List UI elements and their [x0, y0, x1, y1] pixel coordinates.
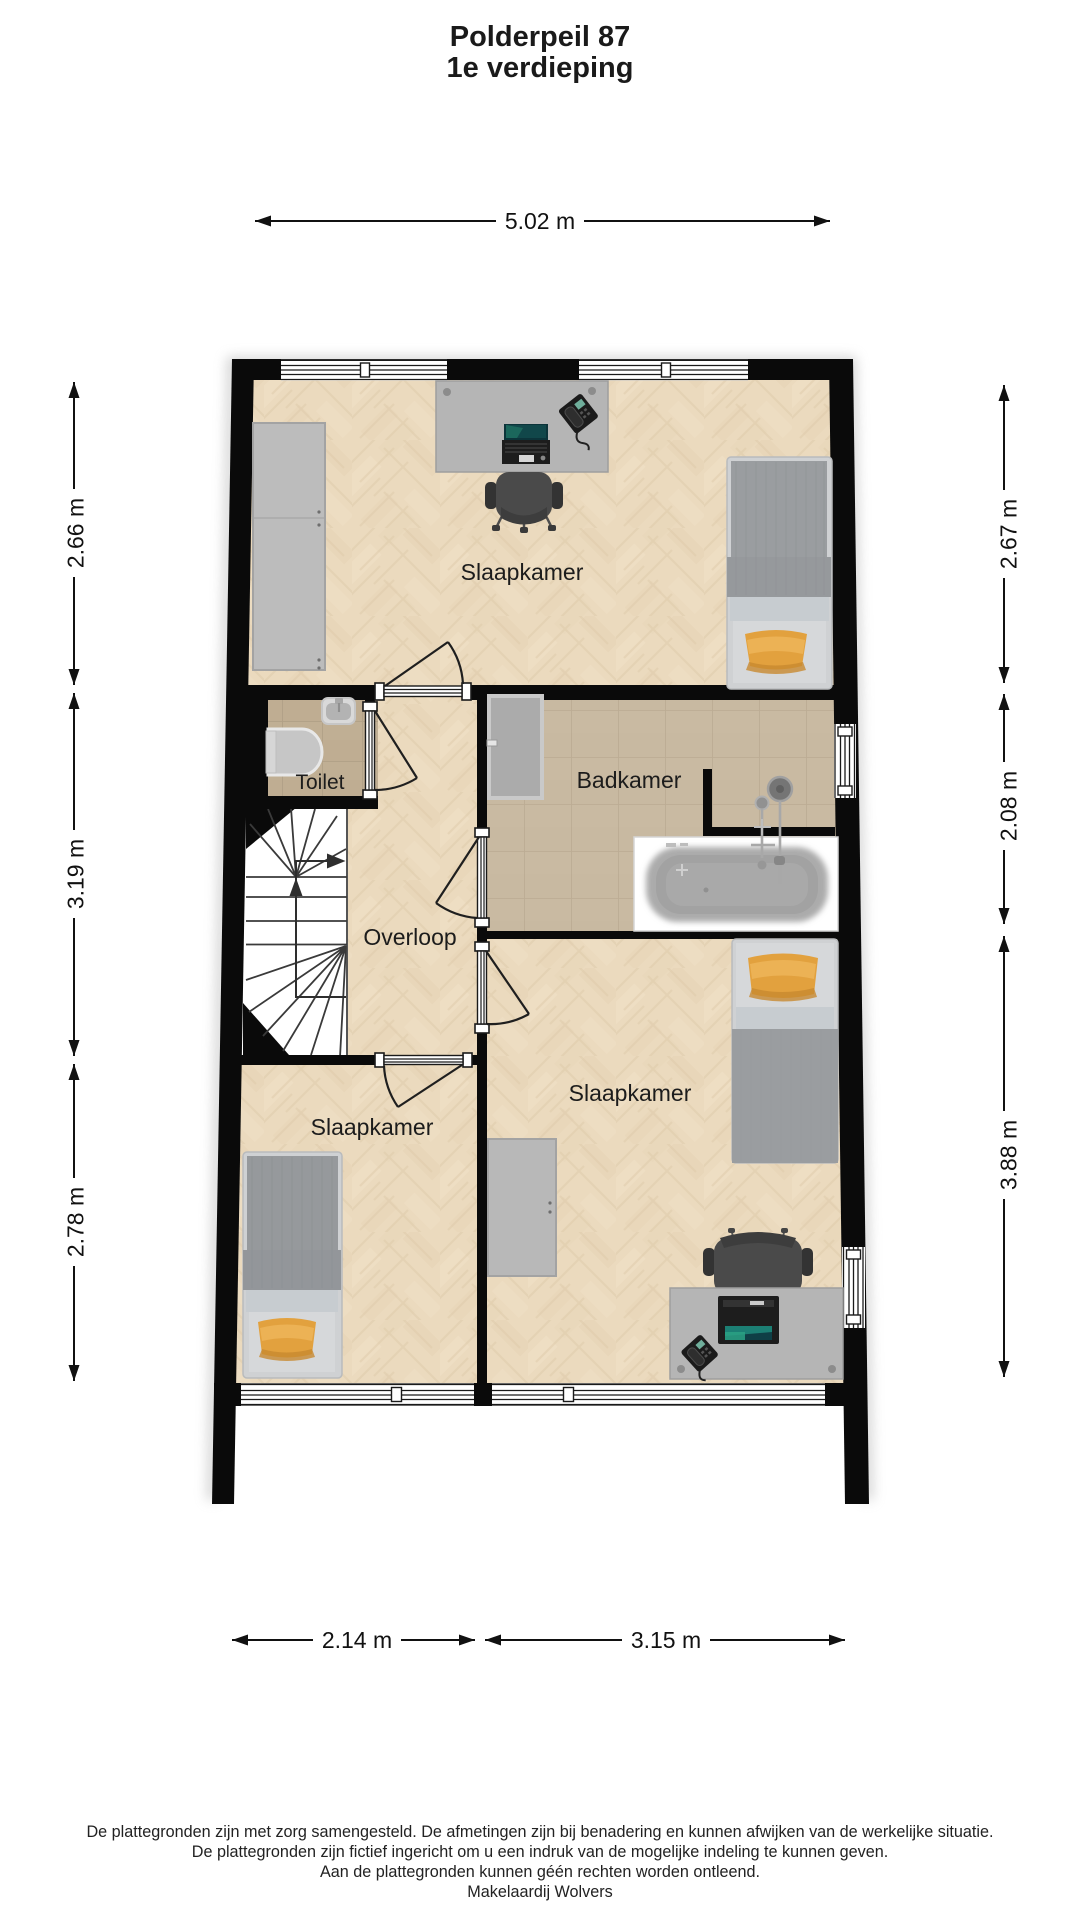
svg-text:2.08 m: 2.08 m: [996, 771, 1022, 841]
svg-text:Aan de plattegronden kunnen gé: Aan de plattegronden kunnen géén rechten…: [320, 1863, 760, 1881]
svg-text:2.66 m: 2.66 m: [63, 498, 89, 568]
svg-text:De plattegronden zijn fictief: De plattegronden zijn fictief ingericht …: [192, 1843, 889, 1861]
svg-text:5.02 m: 5.02 m: [505, 208, 575, 234]
svg-text:2.78 m: 2.78 m: [63, 1187, 89, 1257]
svg-text:Makelaardij Wolvers: Makelaardij Wolvers: [467, 1883, 612, 1901]
svg-text:Overloop: Overloop: [363, 924, 456, 950]
svg-text:Toilet: Toilet: [295, 771, 344, 794]
svg-text:Slaapkamer: Slaapkamer: [311, 1114, 434, 1140]
svg-text:De plattegronden zijn met zorg: De plattegronden zijn met zorg samengest…: [86, 1823, 993, 1841]
svg-text:Slaapkamer: Slaapkamer: [569, 1080, 692, 1106]
svg-text:2.14 m: 2.14 m: [322, 1627, 392, 1653]
svg-text:3.15 m: 3.15 m: [631, 1627, 701, 1653]
svg-text:Badkamer: Badkamer: [577, 767, 682, 793]
svg-text:Polderpeil 87: Polderpeil 87: [450, 21, 631, 53]
svg-text:1e verdieping: 1e verdieping: [447, 52, 634, 84]
svg-text:3.88 m: 3.88 m: [996, 1120, 1022, 1190]
svg-text:3.19 m: 3.19 m: [63, 839, 89, 909]
svg-text:2.67 m: 2.67 m: [996, 499, 1022, 569]
svg-text:Slaapkamer: Slaapkamer: [461, 559, 584, 585]
